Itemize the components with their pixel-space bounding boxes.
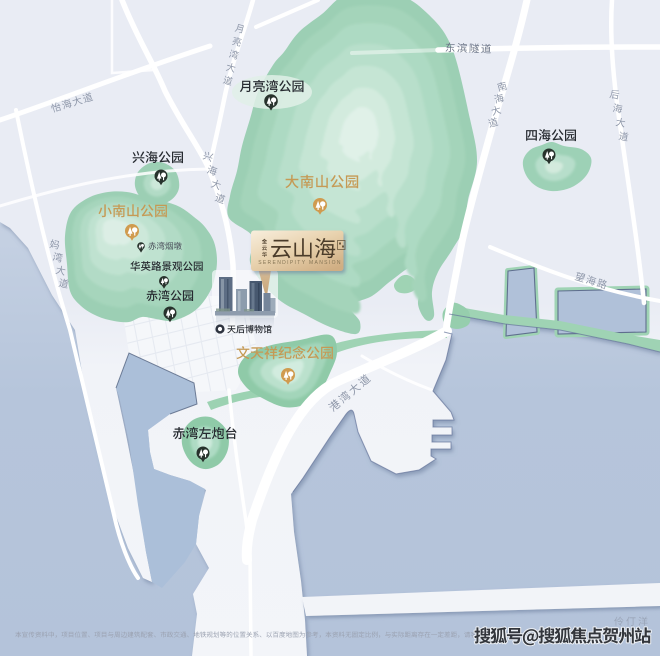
svg-text:SERENDIPITY MANSION: SERENDIPITY MANSION xyxy=(258,260,342,266)
